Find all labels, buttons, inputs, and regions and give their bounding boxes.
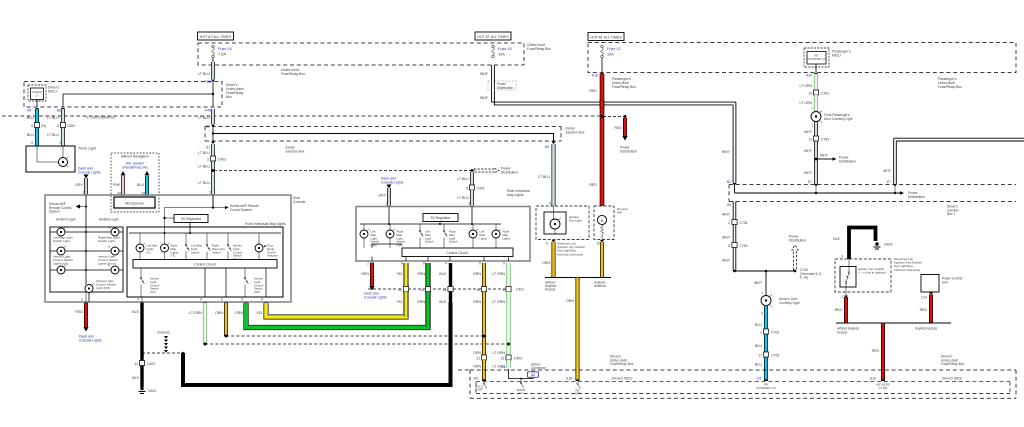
svg-text:Distribution: Distribution <box>620 150 637 154</box>
svg-text:LT SW: LT SW <box>879 386 888 390</box>
svg-text:6: 6 <box>221 298 223 302</box>
svg-text:BLK: BLK <box>132 310 139 314</box>
svg-text:BLU: BLU <box>27 133 34 137</box>
svg-text:Junction Box: Junction Box <box>285 150 305 154</box>
svg-text:LT BLU: LT BLU <box>198 116 210 120</box>
svg-text:LT BLU: LT BLU <box>47 133 59 137</box>
svg-text:Console Lights: Console Lights <box>364 296 387 300</box>
svg-text:GRY: GRY <box>378 194 386 198</box>
svg-text:Lights (Door): Lights (Door) <box>98 262 116 266</box>
svg-text:Lights (On): Lights (On) <box>53 262 68 266</box>
svg-text:RED: RED <box>589 183 597 187</box>
svg-text:A16: A16 <box>592 74 598 78</box>
svg-text:Interlock Solenoid): Interlock Solenoid) <box>557 252 583 256</box>
svg-text:1: 1 <box>82 191 84 195</box>
svg-text:B6: B6 <box>57 109 61 113</box>
svg-text:Lights: Lights <box>503 236 511 240</box>
svg-text:Fuse 15: Fuse 15 <box>498 47 512 51</box>
svg-text:5V Regulator: 5V Regulator <box>431 216 452 220</box>
svg-text:GRN: GRN <box>235 311 243 315</box>
svg-text:(HandsFreeLink): (HandsFreeLink) <box>122 166 147 170</box>
svg-text:WHT: WHT <box>722 150 731 154</box>
svg-text:WHT: WHT <box>722 236 731 240</box>
svg-text:LT BLU: LT BLU <box>198 181 210 185</box>
svg-text:WHT: WHT <box>480 72 489 76</box>
svg-text:G16: G16 <box>870 377 877 381</box>
svg-text:WHT: WHT <box>820 154 829 158</box>
svg-text:LT GRN: LT GRN <box>189 311 202 315</box>
svg-text:Driver's MICU: Driver's MICU <box>942 377 963 381</box>
svg-text:Console Lights: Console Lights <box>381 181 404 185</box>
svg-text:12: 12 <box>808 138 812 142</box>
svg-text:4: 4 <box>137 298 139 302</box>
svg-text:(Off): (Off) <box>254 290 260 294</box>
svg-text:8: 8 <box>503 288 505 292</box>
svg-text:LT GRN: LT GRN <box>799 101 812 105</box>
svg-text:A30: A30 <box>806 74 812 78</box>
svg-text:1: 1 <box>59 141 61 145</box>
svg-text:1: 1 <box>811 124 813 128</box>
svg-text:5: 5 <box>466 187 468 191</box>
svg-text:MICU: MICU <box>48 90 57 94</box>
svg-text:Fuse/Relay Box: Fuse/Relay Box <box>610 362 634 366</box>
svg-text:C781: C781 <box>821 138 829 142</box>
svg-text:9, 10): 9, 10) <box>800 276 808 280</box>
svg-text:Grounds: Grounds <box>157 331 170 335</box>
svg-text:8: 8 <box>31 124 33 128</box>
svg-text:C14: C14 <box>921 296 927 300</box>
svg-text:BLU: BLU <box>27 116 34 120</box>
svg-text:10A: 10A <box>498 53 505 57</box>
svg-text:COURTESY LT: COURTESY LT <box>756 386 776 390</box>
svg-text:B4: B4 <box>545 145 549 149</box>
svg-text:RED: RED <box>835 308 843 312</box>
svg-text:Switch: Switch <box>449 240 458 244</box>
svg-text:ORN: ORN <box>473 351 481 355</box>
svg-text:9: 9 <box>401 262 403 266</box>
svg-text:(On): (On) <box>150 290 156 294</box>
svg-text:BLK: BLK <box>439 272 446 276</box>
svg-text:Distribution: Distribution <box>839 160 856 164</box>
svg-text:LT BLU: LT BLU <box>198 72 210 76</box>
svg-text:LT BLU: LT BLU <box>47 116 59 120</box>
svg-text:6: 6 <box>57 124 59 128</box>
svg-text:2: 2 <box>760 331 762 335</box>
svg-text:WHT: WHT <box>804 171 813 175</box>
svg-text:OFF: OFF <box>575 392 581 396</box>
svg-text:Fuse/Relay Box: Fuse/Relay Box <box>612 85 636 89</box>
svg-text:ORN: ORN <box>473 300 481 304</box>
svg-text:7.5A: 7.5A <box>218 53 226 57</box>
svg-text:Console Lights: Console Lights <box>79 339 102 343</box>
svg-text:7: 7 <box>811 107 813 111</box>
svg-text:LT BLU: LT BLU <box>457 177 469 181</box>
svg-text:BLK: BLK <box>132 376 139 380</box>
svg-text:F49: F49 <box>205 109 211 113</box>
svg-text:RED: RED <box>920 308 928 312</box>
svg-text:C703: C703 <box>771 331 779 335</box>
svg-text:*1: DS5 (Option B): *1: DS5 (Option B) <box>85 116 115 120</box>
svg-text:Fuse/Relay Box: Fuse/Relay Box <box>938 85 962 89</box>
svg-text:GRN: GRN <box>417 300 425 304</box>
svg-text:G403: G403 <box>884 243 892 247</box>
svg-text:Box: Box <box>226 95 232 99</box>
svg-text:10: 10 <box>476 288 480 292</box>
svg-text:Control Circuit: Control Circuit <box>446 251 468 255</box>
svg-text:5: 5 <box>241 298 243 302</box>
svg-text:WHT: WHT <box>754 281 763 285</box>
svg-text:Access: Access <box>545 288 556 292</box>
svg-text:Unit: Unit <box>942 280 948 284</box>
svg-text:Indicator: Indicator <box>267 254 278 258</box>
svg-text:2: 2 <box>207 158 209 162</box>
svg-text:System: System <box>49 210 60 214</box>
svg-text:C402: C402 <box>147 362 155 366</box>
svg-text:BLU: BLU <box>137 183 144 187</box>
svg-text:BLU: BLU <box>755 363 762 367</box>
svg-text:(*2): (*2) <box>146 250 151 254</box>
svg-text:RED: RED <box>872 349 880 353</box>
svg-text:12: 12 <box>443 288 447 292</box>
svg-text:GRN: GRN <box>417 272 425 276</box>
svg-text:PNK: PNK <box>113 183 121 187</box>
svg-text:WHT: WHT <box>480 96 489 100</box>
svg-text:LT BLU: LT BLU <box>538 175 550 179</box>
svg-text:C751: C751 <box>740 221 748 225</box>
svg-text:Switch: Switch <box>191 250 200 254</box>
svg-text:10: 10 <box>596 242 600 246</box>
svg-text:WHT: WHT <box>804 130 813 134</box>
svg-text:Control System: Control System <box>230 208 252 212</box>
svg-text:(*3): (*3) <box>171 254 176 258</box>
svg-text:Distribution: Distribution <box>501 171 518 175</box>
svg-text:COURTESY LT: COURTESY LT <box>808 57 826 61</box>
svg-text:C581: C581 <box>67 124 75 128</box>
svg-text:3: 3 <box>468 202 470 206</box>
svg-text:C403: C403 <box>514 357 522 361</box>
svg-text:MICU: MICU <box>832 54 841 58</box>
svg-text:3: 3 <box>761 312 763 316</box>
svg-text:ORN: ORN <box>542 261 550 265</box>
svg-text:ORN: ORN <box>215 311 223 315</box>
svg-text:2: 2 <box>31 141 33 145</box>
svg-text:Courtesy Light: Courtesy Light <box>779 301 800 305</box>
svg-text:OFF: OFF <box>477 388 483 392</box>
svg-text:Distribution: Distribution <box>908 195 925 199</box>
svg-text:G9: G9 <box>473 377 478 381</box>
svg-text:Connector: Connector <box>531 366 547 370</box>
svg-text:Microphone: Microphone <box>125 202 144 206</box>
svg-text:Junction Box: Junction Box <box>565 131 585 135</box>
svg-text:G3: G3 <box>756 377 761 381</box>
svg-text:1: 1 <box>761 291 763 295</box>
svg-text:2: 2 <box>209 191 211 195</box>
svg-text:F4: F4 <box>501 366 505 370</box>
svg-text:1: 1 <box>841 295 843 299</box>
svg-text:Fuse/Relay Box: Fuse/Relay Box <box>527 47 551 51</box>
svg-text:RED: RED <box>589 89 597 93</box>
svg-text:BLK: BLK <box>833 237 840 241</box>
svg-text:RED: RED <box>614 126 622 130</box>
svg-text:Door Courtesy Light: Door Courtesy Light <box>824 117 852 121</box>
svg-text:Interlock Solenoid): Interlock Solenoid) <box>894 268 920 272</box>
svg-text:BLK: BLK <box>439 300 446 304</box>
svg-text:YEL: YEL <box>256 311 263 315</box>
svg-text:C491: C491 <box>477 187 485 191</box>
svg-text:Antenna: Antenna <box>594 284 606 288</box>
svg-text:5: 5 <box>546 242 548 246</box>
svg-text:ORN: ORN <box>566 299 574 303</box>
svg-text:HOT AT ALL TIMES: HOT AT ALL TIMES <box>590 35 622 39</box>
svg-text:LT: LT <box>519 391 522 395</box>
svg-text:Switch Light: Switch Light <box>53 239 70 243</box>
svg-text:G401: G401 <box>148 389 156 393</box>
svg-text:Switch: Switch <box>212 250 221 254</box>
svg-text:61: 61 <box>206 146 210 150</box>
svg-text:2: 2 <box>81 298 83 302</box>
svg-text:14: 14 <box>398 288 402 292</box>
svg-text:A5: A5 <box>27 109 31 113</box>
svg-text:Console Lights: Console Lights <box>78 171 101 175</box>
svg-text:10A: 10A <box>607 53 614 57</box>
svg-text:5V Regulator: 5V Regulator <box>181 217 202 221</box>
svg-text:Fuse 16: Fuse 16 <box>218 47 232 51</box>
svg-text:Distribution: Distribution <box>789 239 806 243</box>
svg-text:RED: RED <box>75 310 83 314</box>
svg-text:E7: E7 <box>808 180 812 184</box>
svg-text:17: 17 <box>758 354 762 358</box>
svg-text:WHT: WHT <box>722 259 731 263</box>
svg-text:Driver's MICU: Driver's MICU <box>612 377 633 381</box>
svg-text:Lights: Lights <box>480 236 488 240</box>
svg-text:2: 2 <box>728 221 730 225</box>
svg-text:LT BLU: LT BLU <box>198 165 210 169</box>
svg-text:WHT: WHT <box>804 149 813 153</box>
svg-text:Access: Access <box>837 330 848 334</box>
svg-text:Console: Console <box>293 200 306 204</box>
svg-text:9: 9 <box>200 298 202 302</box>
svg-text:22: 22 <box>501 357 505 361</box>
svg-text:Control Circuit: Control Circuit <box>194 263 216 267</box>
svg-text:Ambient Light: Ambient Light <box>99 218 119 222</box>
svg-text:C401: C401 <box>516 288 524 292</box>
svg-text:Ambient Light: Ambient Light <box>56 218 76 222</box>
svg-text:Distribution: Distribution <box>497 86 513 90</box>
svg-text:14: 14 <box>808 92 812 96</box>
svg-text:YEL: YEL <box>396 300 403 304</box>
svg-text:E7: E7 <box>887 180 891 184</box>
svg-text:Fuse/Relay Box: Fuse/Relay Box <box>941 362 965 366</box>
svg-text:LT GRN: LT GRN <box>492 351 505 355</box>
svg-text:LT: LT <box>36 94 39 98</box>
svg-text:8: 8 <box>728 244 730 248</box>
svg-text:HOT AT ALL TIMES: HOT AT ALL TIMES <box>200 35 232 39</box>
svg-text:without Navigation: without Navigation <box>121 155 149 159</box>
svg-text:A6: A6 <box>531 373 535 377</box>
svg-text:(→ = Key in Ignition): (→ = Key in Ignition) <box>858 271 886 275</box>
svg-text:11: 11 <box>134 362 138 366</box>
svg-text:6: 6 <box>479 262 481 266</box>
svg-text:13: 13 <box>420 288 424 292</box>
svg-text:INT: INT <box>814 54 819 58</box>
svg-text:LT GRN: LT GRN <box>799 84 812 88</box>
svg-text:2: 2 <box>841 255 843 259</box>
svg-text:C403: C403 <box>218 158 226 162</box>
svg-text:8: 8 <box>261 298 263 302</box>
svg-text:LT BLU: LT BLU <box>457 196 469 200</box>
svg-text:Fuse/Relay Box: Fuse/Relay Box <box>281 72 305 76</box>
svg-text:Box 1: Box 1 <box>947 212 955 216</box>
svg-text:Switch: Switch <box>425 240 434 244</box>
svg-text:C705: C705 <box>771 354 779 358</box>
svg-text:Keyless Access: Keyless Access <box>915 327 938 331</box>
svg-text:SW: SW <box>617 211 622 215</box>
svg-text:LT GRN: LT GRN <box>492 272 505 276</box>
svg-text:BLU: BLU <box>755 344 762 348</box>
svg-text:WHT: WHT <box>883 169 892 173</box>
svg-text:Front Individual Map Lights: Front Individual Map Lights <box>245 222 286 226</box>
svg-text:2: 2 <box>367 262 369 266</box>
svg-text:HOT AT ALL TIMES: HOT AT ALL TIMES <box>477 35 509 39</box>
svg-text:1: 1 <box>385 202 387 206</box>
svg-text:C752: C752 <box>740 244 748 248</box>
svg-text:Trunk Light: Trunk Light <box>78 147 96 151</box>
svg-text:C781: C781 <box>821 92 829 96</box>
svg-text:Switch Light: Switch Light <box>98 239 115 243</box>
svg-text:F28: F28 <box>205 80 211 84</box>
svg-text:ORN: ORN <box>473 272 481 276</box>
svg-text:G18: G18 <box>566 377 573 381</box>
svg-text:BLU: BLU <box>755 323 762 327</box>
svg-text:5: 5 <box>503 262 505 266</box>
svg-text:Light (Off): Light (Off) <box>96 286 110 290</box>
svg-text:G6: G6 <box>727 203 731 207</box>
svg-text:4: 4 <box>445 262 447 266</box>
svg-text:LT GRN: LT GRN <box>492 300 505 304</box>
svg-text:ORN: ORN <box>473 365 481 369</box>
svg-text:8: 8 <box>423 262 425 266</box>
svg-text:RED: RED <box>361 272 369 276</box>
svg-text:Fuse 12: Fuse 12 <box>607 47 621 51</box>
svg-text:LT BLU: LT BLU <box>198 151 210 155</box>
svg-text:(*6): (*6) <box>41 124 46 128</box>
svg-text:21: 21 <box>476 357 480 361</box>
svg-text:B2: B2 <box>727 180 731 184</box>
svg-text:6: 6 <box>549 202 551 206</box>
svg-text:Map Lights: Map Lights <box>507 193 524 197</box>
svg-text:CARGO: CARGO <box>32 90 42 94</box>
svg-text:Key Light: Key Light <box>569 219 582 223</box>
svg-text:GRY: GRY <box>75 183 83 187</box>
svg-text:YEL: YEL <box>396 272 403 276</box>
svg-text:WHT: WHT <box>722 213 731 217</box>
